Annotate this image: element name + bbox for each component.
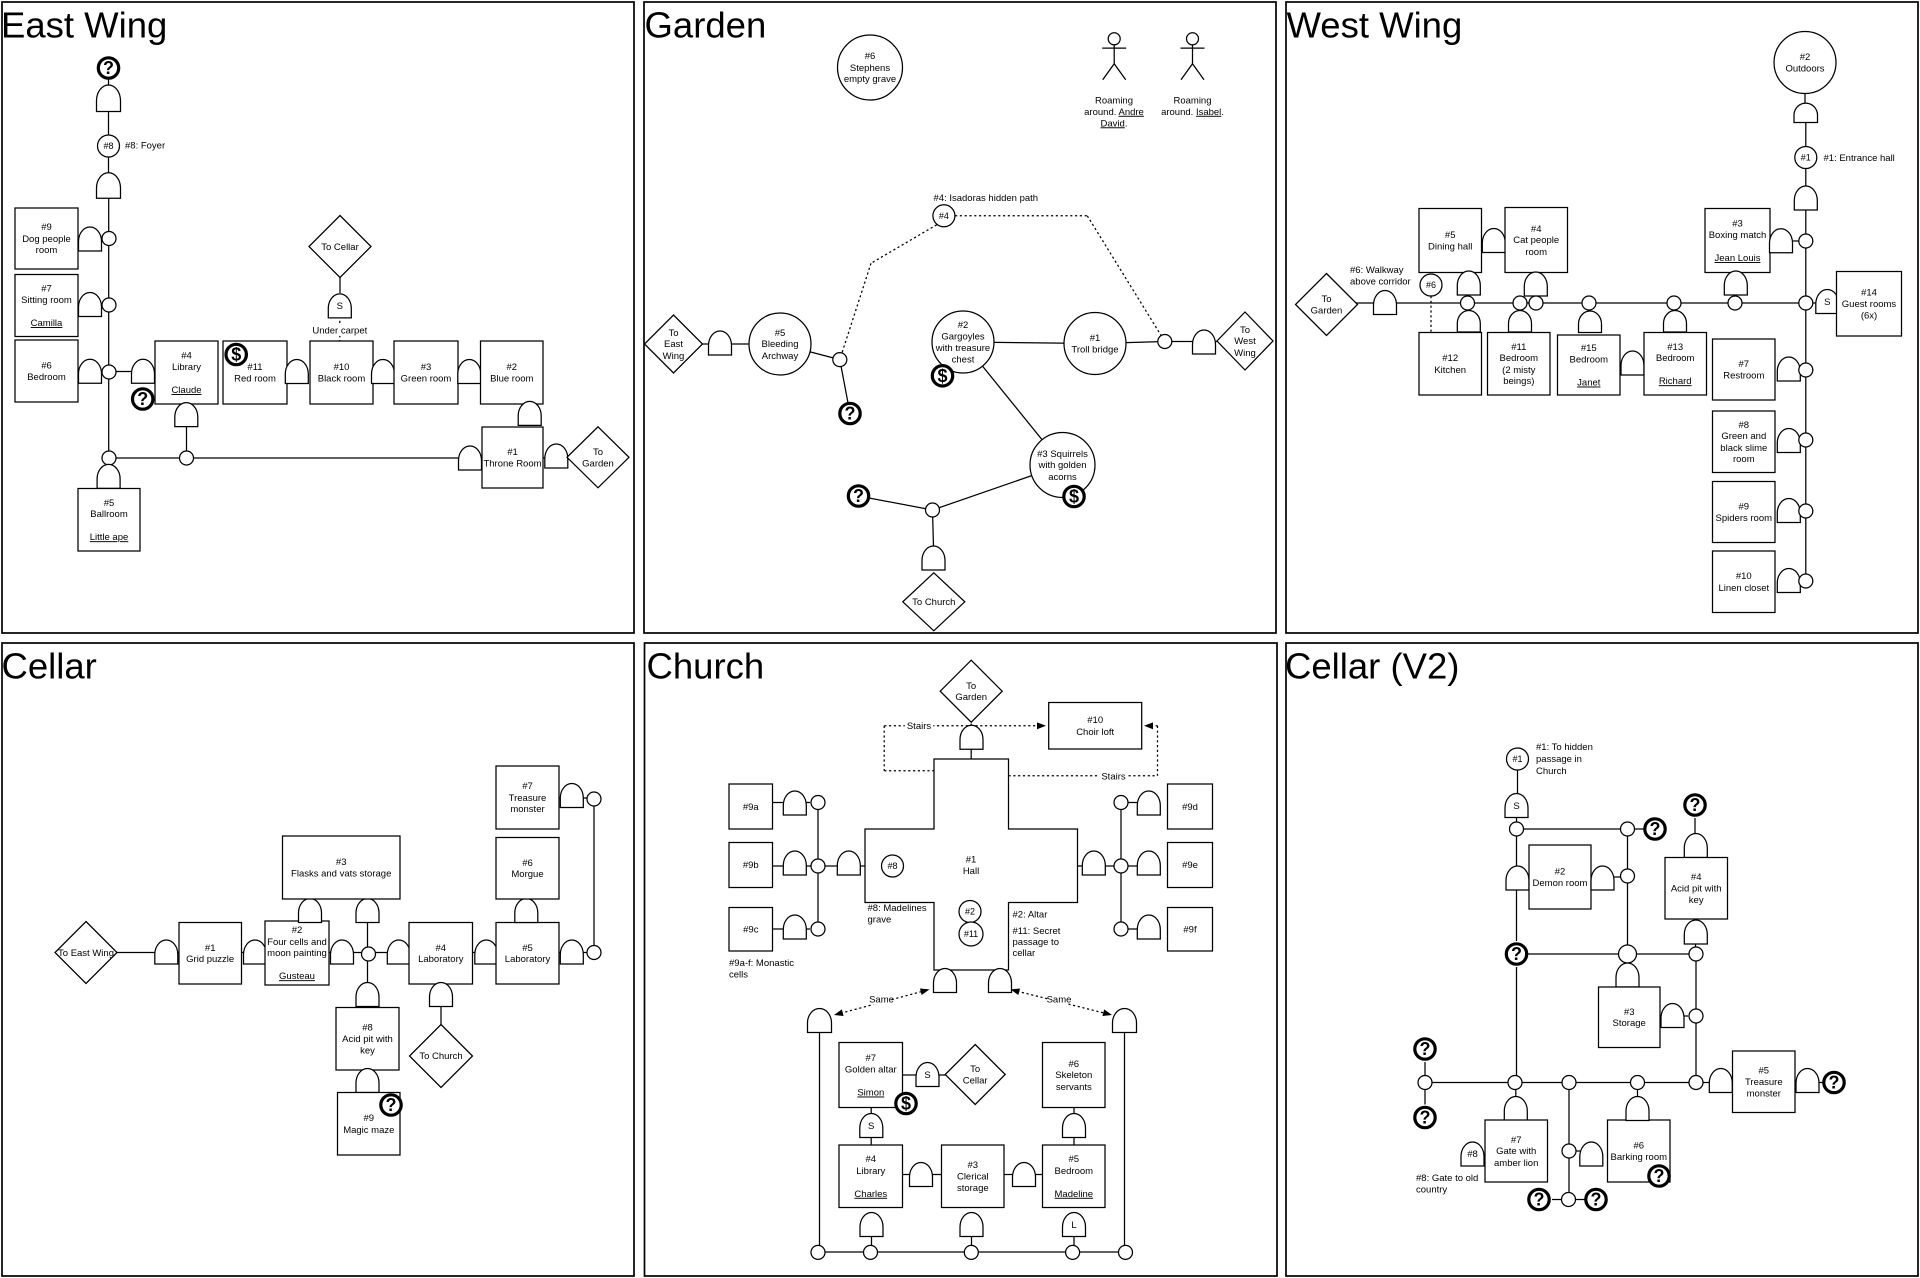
svg-text:#1: #1 xyxy=(1512,754,1522,764)
svg-text:Roaming: Roaming xyxy=(1095,95,1133,106)
svg-text:Red room: Red room xyxy=(234,374,276,385)
svg-text:#7: #7 xyxy=(522,781,533,792)
svg-text:around. Isabel.: around. Isabel. xyxy=(1161,107,1224,118)
svg-text:#8: Gate to old: #8: Gate to old xyxy=(1416,1173,1478,1184)
svg-text:?: ? xyxy=(1591,1190,1602,1210)
svg-text:To: To xyxy=(668,328,678,339)
svg-text:Stairs: Stairs xyxy=(907,721,932,732)
svg-text:S: S xyxy=(1513,801,1519,812)
svg-text:Garden: Garden xyxy=(582,458,614,469)
svg-text:Bedroom: Bedroom xyxy=(1570,355,1609,366)
svg-text:S: S xyxy=(337,301,343,312)
svg-text:#4: #4 xyxy=(939,211,949,221)
svg-text:Green room: Green room xyxy=(401,374,452,385)
svg-text:Cellar: Cellar xyxy=(963,1076,988,1087)
svg-text:moon painting: moon painting xyxy=(267,948,327,959)
svg-text:Cellar: Cellar xyxy=(2,646,97,687)
svg-text:Treasure: Treasure xyxy=(509,793,547,804)
svg-text:Stephens: Stephens xyxy=(850,63,890,74)
svg-text:#9: #9 xyxy=(364,1113,375,1124)
svg-text:Clerical: Clerical xyxy=(957,1172,989,1183)
svg-text:#6: #6 xyxy=(1634,1141,1645,1152)
svg-text:#6: #6 xyxy=(865,51,876,62)
svg-text:?: ? xyxy=(845,404,856,424)
svg-text:#5: #5 xyxy=(104,498,115,509)
svg-text:#2: Altar: #2: Altar xyxy=(1013,909,1048,920)
svg-text:storage: storage xyxy=(957,1183,989,1194)
svg-text:#1: #1 xyxy=(507,447,518,458)
svg-text:#6: #6 xyxy=(1426,280,1436,290)
svg-text:Laboratory: Laboratory xyxy=(505,954,551,965)
svg-text:Flasks and vats storage: Flasks and vats storage xyxy=(291,869,391,880)
svg-text:Outdoors: Outdoors xyxy=(1785,64,1824,75)
svg-text:To Church: To Church xyxy=(419,1051,462,1062)
svg-text:#3: #3 xyxy=(1732,219,1743,230)
svg-text:To Cellar: To Cellar xyxy=(321,242,359,253)
svg-text:#5: #5 xyxy=(1069,1154,1080,1165)
svg-text:#9a: #9a xyxy=(743,802,760,813)
svg-text:Wing: Wing xyxy=(1234,348,1256,359)
svg-text:Throne Room: Throne Room xyxy=(483,459,541,470)
svg-text:empty grave: empty grave xyxy=(844,74,896,85)
svg-text:#7: #7 xyxy=(866,1053,877,1064)
svg-text:monster: monster xyxy=(1747,1089,1781,1100)
svg-text:#3: #3 xyxy=(421,362,432,373)
svg-text:acorns: acorns xyxy=(1048,472,1077,483)
svg-text:Same: Same xyxy=(869,994,894,1005)
svg-text:Dog people: Dog people xyxy=(22,234,71,245)
svg-text:#9d: #9d xyxy=(1182,802,1198,813)
svg-text:#9: #9 xyxy=(1739,502,1750,513)
svg-text:Madeline: Madeline xyxy=(1055,1189,1094,1200)
svg-text:#3: #3 xyxy=(1624,1007,1635,1018)
svg-text:East: East xyxy=(664,339,683,350)
svg-text:Gate with: Gate with xyxy=(1496,1146,1536,1157)
svg-text:$: $ xyxy=(901,1094,911,1114)
svg-text:(2 misty: (2 misty xyxy=(1502,365,1536,376)
svg-text:#11: Secret: #11: Secret xyxy=(1013,926,1061,937)
svg-text:Church: Church xyxy=(647,646,765,687)
svg-text:Library: Library xyxy=(172,362,201,373)
svg-text:#3: #3 xyxy=(968,1160,979,1171)
svg-text:Cellar (V2): Cellar (V2) xyxy=(1285,646,1459,687)
svg-text:passage to: passage to xyxy=(1013,937,1059,948)
svg-text:Simon: Simon xyxy=(857,1088,884,1099)
svg-text:#9c: #9c xyxy=(743,925,759,936)
svg-text:West: West xyxy=(1234,336,1256,347)
svg-text:Roaming: Roaming xyxy=(1173,95,1211,106)
svg-text:To: To xyxy=(593,447,603,458)
svg-text:#11: #11 xyxy=(964,929,978,939)
svg-text:S: S xyxy=(1824,297,1830,308)
svg-text:with golden: with golden xyxy=(1037,460,1086,471)
svg-text:Kitchen: Kitchen xyxy=(1434,365,1466,376)
svg-text:#2: #2 xyxy=(958,320,969,331)
svg-text:Acid pit with: Acid pit with xyxy=(1671,884,1722,895)
svg-text:#2: #2 xyxy=(1555,867,1566,878)
svg-text:To East Wing: To East Wing xyxy=(58,948,114,959)
svg-text:Blue room: Blue room xyxy=(490,374,533,385)
svg-text:Bedroom: Bedroom xyxy=(1656,353,1695,364)
svg-text:#10: #10 xyxy=(334,362,350,373)
svg-text:#1: To hidden: #1: To hidden xyxy=(1536,742,1593,753)
svg-text:#2: #2 xyxy=(965,907,975,917)
svg-text:cells: cells xyxy=(729,970,748,981)
svg-text:amber lion: amber lion xyxy=(1494,1158,1538,1169)
svg-text:Storage: Storage xyxy=(1613,1018,1646,1029)
svg-text:Demon room: Demon room xyxy=(1533,878,1588,889)
svg-text:To: To xyxy=(1240,325,1250,336)
svg-text:#4: #4 xyxy=(866,1154,877,1165)
svg-text:Same: Same xyxy=(1047,994,1072,1005)
svg-text:#7: #7 xyxy=(41,284,52,295)
svg-text:Charles: Charles xyxy=(854,1189,887,1200)
svg-text:#4: Isadoras hidden path: #4: Isadoras hidden path xyxy=(934,193,1039,204)
svg-text:key: key xyxy=(1689,895,1704,906)
svg-text:Acid pit with: Acid pit with xyxy=(342,1034,393,1045)
svg-text:#12: #12 xyxy=(1442,353,1458,364)
svg-text:#3 Squirrels: #3 Squirrels xyxy=(1037,449,1088,460)
svg-text:#6: Walkway: #6: Walkway xyxy=(1350,265,1404,276)
svg-text:#10: #10 xyxy=(1087,715,1103,726)
svg-text:#9: #9 xyxy=(41,222,52,233)
svg-text:Restroom: Restroom xyxy=(1723,371,1764,382)
svg-text:Golden altar: Golden altar xyxy=(845,1065,897,1076)
svg-text:Archway: Archway xyxy=(762,351,799,362)
svg-text:(6x): (6x) xyxy=(1861,311,1877,322)
svg-text:#4: #4 xyxy=(181,351,192,362)
svg-text:Library: Library xyxy=(856,1166,885,1177)
svg-text:To Church: To Church xyxy=(912,597,955,608)
svg-text:#10: #10 xyxy=(1736,571,1752,582)
svg-text:Bedroom: Bedroom xyxy=(1055,1166,1094,1177)
svg-text:Janet: Janet xyxy=(1577,378,1601,389)
svg-text:Green and: Green and xyxy=(1721,431,1766,442)
svg-text:#8: #8 xyxy=(887,861,897,871)
svg-text:passage in: passage in xyxy=(1536,754,1582,765)
svg-text:monster: monster xyxy=(510,804,544,815)
svg-text:$: $ xyxy=(231,345,241,365)
svg-text:East Wing: East Wing xyxy=(1,5,167,46)
svg-text:Little ape: Little ape xyxy=(90,532,129,543)
svg-text:Treasure: Treasure xyxy=(1745,1077,1783,1088)
svg-text:Wing: Wing xyxy=(663,351,685,362)
svg-text:Richard: Richard xyxy=(1659,376,1692,387)
svg-text:room: room xyxy=(1525,247,1547,258)
svg-text:Bedroom: Bedroom xyxy=(1500,353,1539,364)
svg-text:Ballroom: Ballroom xyxy=(90,509,128,520)
svg-text:chest: chest xyxy=(952,355,975,366)
svg-text:Four cells and: Four cells and xyxy=(267,937,327,948)
svg-text:#1: #1 xyxy=(966,855,977,866)
svg-text:#8: #8 xyxy=(1739,420,1750,431)
svg-text:room: room xyxy=(36,245,58,256)
svg-text:#2: #2 xyxy=(292,925,303,936)
svg-text:?: ? xyxy=(1690,795,1701,815)
svg-text:#8: #8 xyxy=(362,1023,373,1034)
svg-text:To: To xyxy=(970,1064,980,1075)
svg-text:key: key xyxy=(360,1046,375,1057)
svg-text:servants: servants xyxy=(1056,1082,1092,1093)
svg-text:?: ? xyxy=(1534,1190,1545,1210)
svg-text:cellar: cellar xyxy=(1013,948,1036,959)
svg-text:Linen closet: Linen closet xyxy=(1718,583,1769,594)
svg-text:#2: #2 xyxy=(1800,52,1811,63)
svg-text:$: $ xyxy=(1069,487,1079,507)
svg-text:#8: #8 xyxy=(1467,1149,1478,1160)
svg-text:Guest rooms: Guest rooms xyxy=(1842,299,1897,310)
svg-text:#4: #4 xyxy=(1691,872,1702,883)
svg-text:Spiders room: Spiders room xyxy=(1716,513,1773,524)
svg-text:?: ? xyxy=(103,58,114,78)
svg-text:Choir loft: Choir loft xyxy=(1076,727,1114,738)
svg-text:#6: #6 xyxy=(522,858,533,869)
svg-text:grave: grave xyxy=(868,914,892,925)
svg-text:Bedroom: Bedroom xyxy=(27,372,66,383)
svg-text:#1: Entrance hall: #1: Entrance hall xyxy=(1824,153,1895,164)
svg-text:#1: #1 xyxy=(1090,333,1101,344)
svg-text:#8: Madelines: #8: Madelines xyxy=(868,903,927,914)
svg-text:Claude: Claude xyxy=(171,385,201,396)
svg-text:#3: #3 xyxy=(336,857,347,868)
svg-text:#14: #14 xyxy=(1861,288,1877,299)
svg-text:#7: #7 xyxy=(1511,1135,1522,1146)
svg-text:$: $ xyxy=(937,366,947,386)
svg-text:Gargoyles: Gargoyles xyxy=(941,332,985,343)
svg-text:S: S xyxy=(924,1070,930,1081)
svg-text:country: country xyxy=(1416,1185,1447,1196)
svg-text:#7: #7 xyxy=(1739,359,1750,370)
svg-text:#4: #4 xyxy=(436,943,447,954)
svg-text:#1: #1 xyxy=(1801,153,1811,163)
svg-text:beings): beings) xyxy=(1503,376,1534,387)
svg-text:#5: #5 xyxy=(522,943,533,954)
svg-text:Garden: Garden xyxy=(1311,306,1343,317)
svg-text:?: ? xyxy=(1829,1073,1840,1093)
svg-text:S: S xyxy=(868,1121,874,1132)
svg-text:#9b: #9b xyxy=(743,860,759,871)
svg-text:Sitting room: Sitting room xyxy=(21,295,72,306)
svg-text:#11: #11 xyxy=(1511,342,1526,353)
svg-text:#9e: #9e xyxy=(1182,860,1198,871)
svg-text:#5: #5 xyxy=(1759,1066,1770,1077)
svg-text:?: ? xyxy=(1650,819,1661,839)
svg-text:#9f: #9f xyxy=(1183,925,1197,936)
svg-text:#6: #6 xyxy=(41,361,52,372)
svg-text:Camilla: Camilla xyxy=(31,318,63,329)
svg-text:black slime: black slime xyxy=(1720,443,1767,454)
svg-text:To: To xyxy=(966,681,976,692)
svg-text:Skeleton: Skeleton xyxy=(1055,1070,1092,1081)
svg-text:To: To xyxy=(1321,294,1331,305)
svg-text:Morgue: Morgue xyxy=(511,869,543,880)
svg-text:#4: #4 xyxy=(1531,224,1542,235)
svg-text:Bleeding: Bleeding xyxy=(762,339,799,350)
svg-text:Gusteau: Gusteau xyxy=(279,971,315,982)
svg-text:?: ? xyxy=(1654,1166,1665,1186)
svg-text:Jean Louis: Jean Louis xyxy=(1715,253,1761,264)
svg-text:#13: #13 xyxy=(1667,342,1683,353)
svg-text:Troll bridge: Troll bridge xyxy=(1071,345,1118,356)
svg-text:#8: Foyer: #8: Foyer xyxy=(125,141,165,152)
svg-text:#6: #6 xyxy=(1069,1059,1080,1070)
svg-text:Black room: Black room xyxy=(318,374,366,385)
svg-text:Cat people: Cat people xyxy=(1513,235,1559,246)
svg-text:Stairs: Stairs xyxy=(1101,771,1126,782)
svg-text:#1: #1 xyxy=(205,943,216,954)
svg-text:?: ? xyxy=(386,1095,397,1115)
svg-text:?: ? xyxy=(1511,944,1522,964)
svg-text:#2: #2 xyxy=(507,362,518,373)
svg-text:?: ? xyxy=(1420,1039,1431,1059)
svg-text:L: L xyxy=(1071,1220,1076,1231)
svg-text:?: ? xyxy=(853,486,864,506)
svg-text:Boxing match: Boxing match xyxy=(1709,230,1767,241)
svg-text:#11: #11 xyxy=(247,362,262,373)
svg-text:Dining hall: Dining hall xyxy=(1428,242,1472,253)
svg-text:with treasure: with treasure xyxy=(935,343,990,354)
svg-text:Magic maze: Magic maze xyxy=(343,1125,394,1136)
svg-text:Laboratory: Laboratory xyxy=(418,954,464,965)
svg-text:#5: #5 xyxy=(1445,230,1456,241)
svg-text:#5: #5 xyxy=(775,328,786,339)
svg-text:?: ? xyxy=(137,389,148,409)
svg-text:Hall: Hall xyxy=(963,866,979,877)
svg-text:above corridor: above corridor xyxy=(1350,276,1411,287)
svg-text:#9a-f: Monastic: #9a-f: Monastic xyxy=(729,958,794,969)
svg-text:West Wing: West Wing xyxy=(1287,5,1463,46)
svg-text:Grid puzzle: Grid puzzle xyxy=(186,954,234,965)
svg-text:Barking room: Barking room xyxy=(1611,1152,1668,1163)
svg-text:?: ? xyxy=(1420,1108,1431,1128)
svg-text:Church: Church xyxy=(1536,766,1567,777)
svg-text:Garden: Garden xyxy=(645,5,767,46)
svg-text:Garden: Garden xyxy=(955,692,987,703)
svg-text:#8: #8 xyxy=(103,141,113,151)
svg-text:David.: David. xyxy=(1101,118,1128,129)
svg-text:Under carpet: Under carpet xyxy=(312,325,367,336)
svg-text:#15: #15 xyxy=(1581,343,1597,354)
svg-text:around. Andre: around. Andre xyxy=(1084,107,1144,118)
svg-text:room: room xyxy=(1733,454,1755,465)
